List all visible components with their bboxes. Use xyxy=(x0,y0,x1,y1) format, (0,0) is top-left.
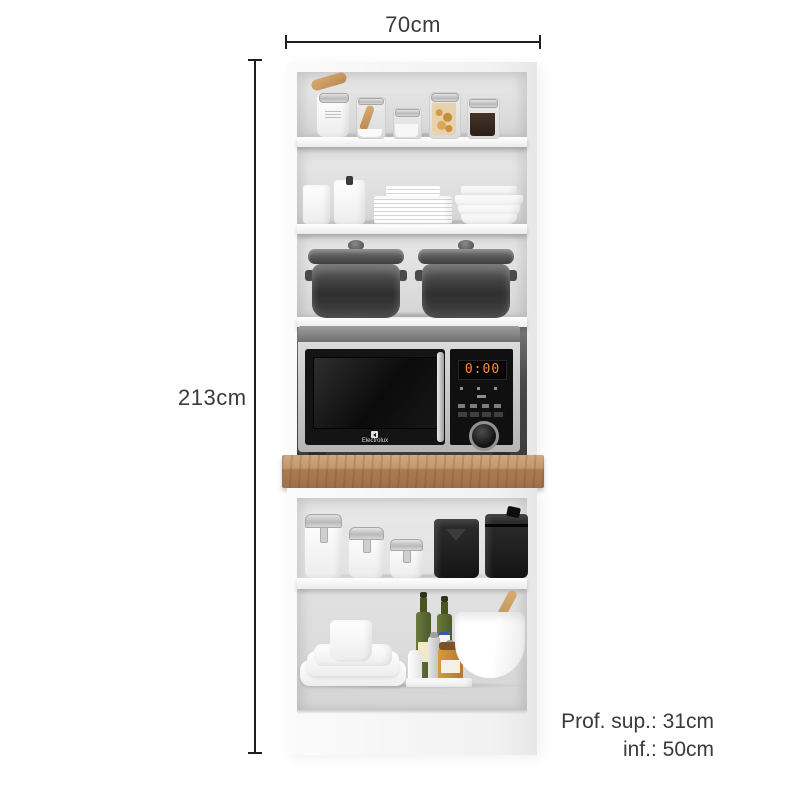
microwave-control-panel: 0:00 xyxy=(450,349,513,445)
height-dimension-tick-top xyxy=(248,59,262,61)
sugar-jar xyxy=(393,108,422,139)
coffee-contents xyxy=(470,113,495,136)
black-container-spout xyxy=(446,529,466,541)
stacked-dish-top xyxy=(461,186,517,195)
flour-jar-label xyxy=(325,111,341,118)
canister-clamp xyxy=(363,539,371,553)
coffee-jar xyxy=(467,98,500,139)
scoop-inside-jar xyxy=(359,104,375,131)
cookie-jar-lid xyxy=(431,93,459,102)
microwave: Electrolux 0:00 xyxy=(298,326,520,458)
casserole-lid xyxy=(308,249,404,264)
electrolux-brand-text: Electrolux xyxy=(355,438,395,445)
flour-jar xyxy=(317,93,349,137)
jar-contents-white xyxy=(358,129,382,137)
coffee-jar-lid xyxy=(469,99,498,108)
panel-icon-row-2 xyxy=(477,395,486,398)
microwave-window xyxy=(313,357,439,429)
width-dimension-line xyxy=(286,41,540,43)
white-canister-large xyxy=(334,180,365,224)
width-dimension-label: 70cm xyxy=(350,12,476,38)
cookie-contents xyxy=(432,103,456,135)
panel-button-row-2 xyxy=(458,412,505,417)
width-dimension-tick-left xyxy=(285,35,287,49)
white-cup xyxy=(330,620,372,662)
glass-jar-with-scoop xyxy=(356,97,386,139)
hutch-shelf-board-2 xyxy=(297,224,527,234)
electrolux-mark-icon xyxy=(371,431,378,438)
height-dimension-tick-bottom xyxy=(248,752,262,754)
width-dimension-tick-right xyxy=(539,35,541,49)
panel-button-row-1 xyxy=(458,404,505,408)
flour-jar-lid xyxy=(319,93,349,103)
glass-casserole-right xyxy=(422,240,510,318)
white-tray xyxy=(406,678,472,687)
casserole-body xyxy=(422,264,510,318)
ceramic-canister-large xyxy=(305,516,342,578)
black-container-handle xyxy=(506,506,521,518)
glass-jar-lid xyxy=(358,98,384,105)
microwave-display: 0:00 xyxy=(458,360,507,380)
casserole-body xyxy=(312,264,400,318)
base-floor-edge xyxy=(297,710,527,714)
ceramic-canister-medium xyxy=(349,529,384,578)
microwave-top-face xyxy=(298,326,520,342)
canister-clamp xyxy=(403,550,411,563)
canister-lid xyxy=(305,514,342,528)
microwave-door-handle xyxy=(437,352,444,442)
wood-countertop xyxy=(282,455,544,488)
base-shelf-board xyxy=(297,578,527,589)
electrolux-mark-glyph xyxy=(373,433,376,437)
electrolux-logo: Electrolux xyxy=(363,431,387,444)
product-dimension-image: 70cm 213cm Prof. sup.: 31cm inf.: 50cm xyxy=(0,0,800,800)
ceramic-canister-small xyxy=(390,541,423,578)
microwave-dial-knob xyxy=(469,421,499,451)
white-canister-small xyxy=(303,185,330,224)
sugar-jar-lid xyxy=(395,109,420,117)
height-dimension-label: 213cm xyxy=(178,385,246,411)
canister-clamp xyxy=(320,527,328,543)
mill-cap xyxy=(430,632,438,638)
cookie-jar xyxy=(429,92,461,139)
black-container-1 xyxy=(434,519,479,578)
small-plate-stack xyxy=(386,186,440,196)
plate-stack xyxy=(374,196,452,224)
square-bowl-3 xyxy=(461,214,517,224)
sugar-contents xyxy=(395,124,418,137)
canister-clip xyxy=(346,176,353,185)
honey-jar-label xyxy=(441,660,460,673)
panel-icon-row-1 xyxy=(460,387,503,390)
height-dimension-line xyxy=(254,60,256,753)
microwave-door: Electrolux xyxy=(305,349,445,445)
black-container-lid-seam xyxy=(485,524,528,527)
black-container-2 xyxy=(485,514,528,578)
glass-casserole-left xyxy=(312,240,400,318)
casserole-lid xyxy=(418,249,514,264)
